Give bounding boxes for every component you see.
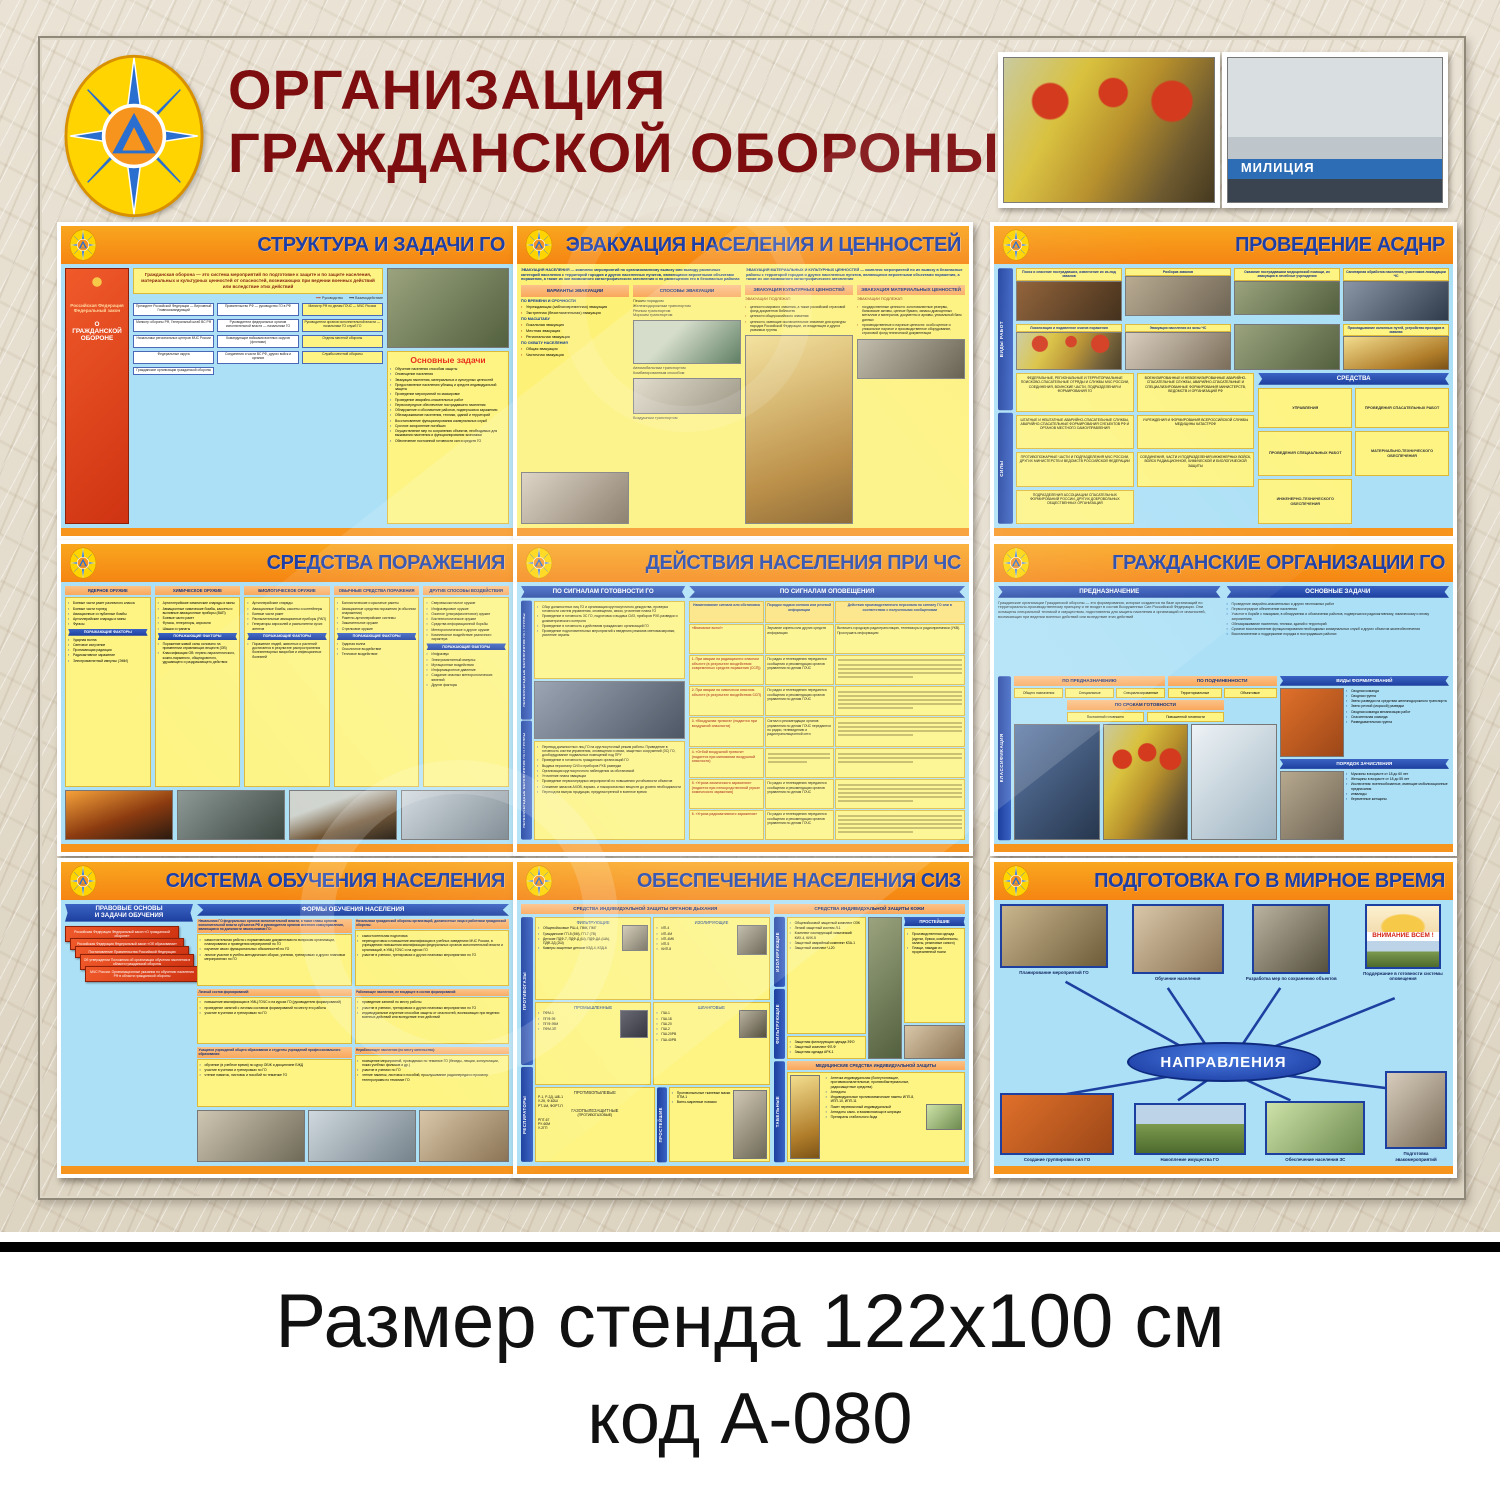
equipment-stock-photo xyxy=(1134,1103,1246,1155)
vrib-filtruyushchie: ФИЛЬТРУЮЩИЕ xyxy=(774,989,785,1059)
siz-model: ППФ-95 xyxy=(538,1017,618,1021)
vrib-tabelnye: ТАБЕЛЬНЫЕ xyxy=(774,1061,785,1162)
work-photo xyxy=(1016,332,1122,370)
vrib-protivogazy: ПРОТИВОГАЗЫ xyxy=(521,917,533,1065)
siz-model: Камеры защитные детские КЗД-4, КЗД-6 xyxy=(538,946,620,950)
evac-col4-title: ЭВАКУАЦИЯ МАТЕРИАЛЬНЫХ ЦЕННОСТЕЙ xyxy=(857,285,965,295)
skin-iso-item: Защитный аварийный комплект КЗА-1 xyxy=(790,941,863,945)
evac-ways3: Воздушным транспортом xyxy=(633,416,741,421)
coat-of-arms-icon xyxy=(90,275,104,289)
panel-actions: ДЕЙСТВИЯ НАСЕЛЕНИЯ ПРИ ЧС ПО СИГНАЛАМ ГО… xyxy=(513,540,973,856)
evac-variant: Региональная эвакуация xyxy=(521,335,629,340)
skin-iso-item: Комплект изолирующий химический КИХ-4, К… xyxy=(790,931,863,940)
siz-model: ПШ-2 xyxy=(656,1027,736,1031)
mchs-emblem-icon xyxy=(525,229,553,261)
weapon-factors-item: Создание опасных метеорологических явлен… xyxy=(426,673,506,682)
weapon-factors-item: Поражение живой силы основано на примене… xyxy=(158,642,238,651)
org-chart-box: Гражданские организации гражданской обор… xyxy=(133,367,214,376)
weapon-items-item: Фугасы xyxy=(68,622,148,626)
signal-name: 6. «Угроза радиоактивного заражения» xyxy=(689,810,763,840)
evac-col3-list: ценности мирового значения, а также росс… xyxy=(745,304,853,334)
skin-filter-list: Защитная фильтрующая одежда ЗФОЗащитный … xyxy=(787,1036,866,1059)
table-header: Действия производственного персонала по … xyxy=(835,601,965,623)
signal-name: 4. «Отбой воздушной тревоги» (подается п… xyxy=(689,748,763,778)
training-item: личное участие в учебно-методических сбо… xyxy=(200,953,350,962)
work-photo xyxy=(1234,281,1340,315)
evac-cultural-item: ценности мирового значения, а также росс… xyxy=(745,305,853,314)
skin-simple-item: Производственная одежда (куртки, брюки, … xyxy=(907,932,962,945)
org-chart-box: Соединения и части ВС РФ, других войск и… xyxy=(217,351,298,364)
sredstva-box: ПРОВЕДЕНИЯ СПЕЦИАЛЬНЫХ РАБОТ xyxy=(1258,431,1352,476)
training-group-list: обучение (в учебное время) по курсу ОБЖ … xyxy=(197,1059,352,1107)
training-group-title: Начальники гражданской обороны организац… xyxy=(355,919,510,930)
signal-order: По радио и телевидению передаются сообще… xyxy=(765,779,834,809)
weapon-items-item: Авиационные и глубинные бомбы xyxy=(68,612,148,616)
task-item: Восстановление функционирования коммунал… xyxy=(390,419,506,423)
panel8-header: ОБЕСПЕЧЕНИЕ НАСЕЛЕНИЯ СИЗ xyxy=(517,862,969,900)
weapon-items-item: Артиллерийские снаряды xyxy=(247,601,327,605)
gotovnost-item: Перевод должностных лиц ГО на круглосуто… xyxy=(537,745,682,758)
ribbon-prednaznachenie: ПРЕДНАЗНАЧЕНИЕ xyxy=(998,586,1221,598)
law-book-title: О ГРАЖДАНСКОЙ ОБОРОНЕ xyxy=(69,321,125,342)
weapon-factors-item: Тепловое воздействие xyxy=(337,652,417,656)
work-photo xyxy=(1343,336,1449,370)
evac-way: Комбинированным способом xyxy=(633,371,741,376)
worker-photo xyxy=(904,1025,965,1059)
training-group-title: Начальники ГО федеральных органов исполн… xyxy=(197,919,352,934)
signal-order: По радио и телевидению передаются сообще… xyxy=(765,686,834,716)
mchs-emblem-icon xyxy=(69,547,97,579)
formation-type: Разведывательная группа xyxy=(1346,720,1449,724)
skin-iso-item: Легкий защитный костюм Л-1 xyxy=(790,926,863,930)
signal-actions: Включить городскую радиотрансляцию, теле… xyxy=(835,624,965,654)
g2-title: ПО ПОДЧИНЕННОСТИ xyxy=(1168,676,1277,686)
work-caption: Локализация и подавление очагов поражени… xyxy=(1016,324,1122,332)
weapon-items-item: Биотехнологическое оружие xyxy=(426,617,506,621)
signal-name: «Внимание всем!» xyxy=(689,624,763,654)
work-photo xyxy=(1234,324,1340,371)
signal-actions-text xyxy=(837,753,962,763)
sign-text: ВНИМАНИЕ ВСЕМ ! xyxy=(1367,932,1439,941)
top-nodes: Планирование мероприятий ГО Обучение нас… xyxy=(998,904,1449,981)
mchs-emblem-icon xyxy=(525,547,553,579)
weapon-items-item: Стрелковое оружие xyxy=(337,627,417,631)
node-caption: Обучение населения xyxy=(1155,976,1201,981)
panel1-header: СТРУКТУРА И ЗАДАЧИ ГО xyxy=(61,226,513,264)
table-header: Наименование сигнала или обстановка xyxy=(689,601,763,623)
works-grid: Поиск и спасение пострадавших, извлечени… xyxy=(1016,268,1449,370)
task-item: Проведение аварийно-спасательных работ xyxy=(390,398,506,402)
training-item: самостоятельная работа с нормативными до… xyxy=(200,938,350,947)
bottom-nodes: Создание группировки сил ГО Накопление и… xyxy=(998,1071,1449,1162)
siz-model: Гражданские ГП-5 (5М), ГП-7 (7В) xyxy=(538,932,620,936)
ipp-packet-photo xyxy=(926,1104,962,1130)
node-caption: Разработка мер по сохранению объектов xyxy=(1246,976,1337,981)
weapon-column-title: ДРУГИЕ СПОСОБЫ ВОЗДЕЙСТВИЯ xyxy=(423,586,509,595)
panel-peacetime: ПОДГОТОВКА ГО В МИРНОЕ ВРЕМЯ Планировани… xyxy=(990,858,1457,1178)
suits-photo xyxy=(1103,724,1189,840)
weapon-factors: ИнфразвукЭлектромагнитный импульсМутацио… xyxy=(426,652,506,687)
org-chart-box: Министр РФ по делам ГОЧС — МЧС России xyxy=(302,303,383,316)
evac-way: Морским транспортом xyxy=(633,313,741,318)
training-item: участие в учениях и тренировках по ГО xyxy=(200,1068,350,1072)
docs-cascade: Российская Федерация Федеральный закон «… xyxy=(65,926,193,983)
siz-model: ПФМ-1 xyxy=(538,1011,618,1015)
hose-mask-photo xyxy=(739,1010,767,1038)
work-caption: Прокладывание колонных путей, устройство… xyxy=(1343,324,1449,337)
weapon-factors-item: Электромагнитный импульс xyxy=(426,658,506,662)
photo-police-van: МИЛИЦИЯ xyxy=(1222,52,1448,208)
table-header: Порядок подачи сигнала или речевой инфор… xyxy=(765,601,834,623)
enrollment-rule: Исключения: военнообязанные, имеющие моб… xyxy=(1346,782,1449,791)
task-item: Предоставление населению убежищ и средст… xyxy=(390,383,506,392)
separator-bar xyxy=(0,1242,1500,1252)
evac-g1: Упреждающая (заблаговременная) эвакуация… xyxy=(521,305,629,315)
training-item: индивидуальное изучение способов защиты … xyxy=(357,1011,507,1020)
org-task: Проведение аварийно-спасательных и други… xyxy=(1227,602,1450,606)
med-item: Индивидуальные противохимические пакеты … xyxy=(826,1095,922,1104)
sredstva-box: МАТЕРИАЛЬНО-ТЕХНИЧЕСКОГО ОБЕСПЕЧЕНИЯ xyxy=(1355,431,1449,476)
training-item: обучение (в учебное время) по курсу ОБЖ … xyxy=(200,1063,350,1067)
org-chart-box: Президент Российской Федерации — Верховн… xyxy=(133,303,214,316)
enrollment-rule: инвалиды xyxy=(1346,792,1449,796)
cloth-mask-photo xyxy=(733,1090,767,1159)
org-chart-box: Руководители органов исполнительной влас… xyxy=(302,319,383,332)
sredstva-box: ПРОВЕДЕНИЯ СПАСАТЕЛЬНЫХ РАБОТ xyxy=(1355,388,1449,428)
simple-list: Противопыльные тканевые маски ПТМ-1Ватно… xyxy=(672,1090,731,1159)
training-item: посещение мероприятий, проводимых по тем… xyxy=(357,1059,507,1068)
mchs-emblem-icon xyxy=(58,52,210,220)
enrollment-rule: беременные женщины xyxy=(1346,797,1449,801)
weapon-items-item: Фугасы, генераторы, аэрозоли xyxy=(158,621,238,625)
police-van-text: МИЛИЦИЯ xyxy=(1241,160,1315,175)
weapon-items-item: Сверхвысокоточное оружие xyxy=(426,601,506,605)
training-group-title: Неработающее население (по месту жительс… xyxy=(355,1047,510,1054)
equipment-photo xyxy=(857,339,965,379)
training-group-list: самостоятельная подготовкапереподготовка… xyxy=(355,930,510,986)
training-item: участие в учениях по ГО xyxy=(357,1068,507,1072)
panel9-title: ПОДГОТОВКА ГО В МИРНОЕ ВРЕМЯ xyxy=(1094,870,1445,893)
gotovnost-item: Сбор должностных лиц ГО и организация кр… xyxy=(537,605,682,614)
go-definition: Гражданская оборона — это система меропр… xyxy=(133,268,383,294)
org-chart-box: Руководители федеральных органов исполни… xyxy=(217,319,298,332)
g3-title: ПО СРОКАМ ГОТОВНОСТИ xyxy=(1067,700,1225,710)
org-task: Первоочередное обеспечение населения xyxy=(1227,607,1450,611)
vnimanie-vsem-sign: ВНИМАНИЕ ВСЕМ ! xyxy=(1365,904,1441,969)
evac-g3h: ПО ОХВАТУ НАСЕЛЕНИЯ xyxy=(521,341,629,346)
siz-model: Общевойсковые РШ-4, ПМК, ПМГ xyxy=(538,926,620,930)
org-chart-box: Службы местной обороны xyxy=(302,351,383,364)
evac-g2h: ПО МАСШТАБУ xyxy=(521,317,629,322)
work-photo xyxy=(1343,281,1449,321)
forces-box: Штатные и нештатные аварийно-спасательны… xyxy=(1016,415,1134,449)
weapon-items-item: Комплексное воздействие различного харак… xyxy=(426,633,506,642)
panel3-title: ПРОВЕДЕНИЕ АСДНР xyxy=(1235,234,1445,257)
forces-box: Подразделения ассоциации спасательных фо… xyxy=(1016,490,1134,524)
rescue-photo xyxy=(387,268,509,348)
task-item: Эвакуация населения, материальных и куль… xyxy=(390,378,506,382)
med-item: Препараты стабильного йода xyxy=(826,1115,922,1119)
weapon-factors-item: Ударная волна xyxy=(68,638,148,642)
weapon-items-item: Шашки и гранаты xyxy=(158,627,238,631)
vrib-respiratory: РЕСПИРАТОРЫ xyxy=(521,1067,533,1162)
weapon-column-title: БИОЛОГИЧЕСКОЕ ОРУЖИЕ xyxy=(244,586,330,595)
org-task: Участие в борьбе с пожарами, в обнаружен… xyxy=(1227,612,1450,621)
training-item: чтение памяток, листовок и пособий по те… xyxy=(200,1073,350,1077)
siz-model: ИП-4 xyxy=(656,926,734,930)
class-box: Постоянной готовности xyxy=(1067,712,1144,722)
class-box: Специальные xyxy=(1065,688,1114,698)
forces-box: Учреждения и формирования Всероссийской … xyxy=(1137,415,1255,449)
weapon-factors-item: Поражение людей, животных и растений дос… xyxy=(247,642,327,659)
gotovnost-item: Приведение в готовность ЗС ГО, подготовк… xyxy=(537,614,682,623)
weapon-items-item: Боевые части торпед xyxy=(68,607,148,611)
evac-cultural-item: ценности общероссийского значения xyxy=(745,314,853,318)
weapon-column-body: Сверхвысокоточное оружиеИнфразвуковое ор… xyxy=(423,597,509,787)
weapon-items-item: Авиационные средства поражения (в обычно… xyxy=(337,607,417,616)
work-photo xyxy=(1016,281,1122,321)
weapon-items-item: Баллистические и крылатые ракеты xyxy=(337,601,417,605)
siz-simple-item: Ватно-марлевые повязки xyxy=(672,1100,731,1104)
panel4-header: СРЕДСТВА ПОРАЖЕНИЯ xyxy=(61,544,513,582)
evac-material-item: государственные ценности: золотовалютные… xyxy=(857,305,965,322)
siz-skin-title: СРЕДСТВА ИНДИВИДУАЛЬНОЙ ЗАЩИТЫ КОЖИ xyxy=(774,904,965,914)
photo-rescuers xyxy=(998,52,1220,208)
training-item: участие в учениях, тренировках и других … xyxy=(357,953,507,957)
class-box: Объектовые xyxy=(1224,688,1277,698)
g1-title: ПО ПРЕДНАЗНАЧЕНИЮ xyxy=(1014,676,1165,686)
skin-iso-item: Общевойсковой защитный комплект ОЗК xyxy=(790,921,863,925)
police-van-photo-image: МИЛИЦИЯ xyxy=(1227,57,1443,203)
weapon-column-body: Артиллерийские снарядыАвиационные бомбы,… xyxy=(244,597,330,787)
stand-title: ОРГАНИЗАЦИЯ ГРАЖДАНСКОЙ ОБОРОНЫ xyxy=(228,62,1000,181)
org-chart-box: Начальники региональных центров МЧС Росс… xyxy=(133,335,214,348)
sredstva-box: УПРАВЛЕНИЯ xyxy=(1258,388,1352,428)
stand-title-line1: ОРГАНИЗАЦИЯ xyxy=(228,62,1000,118)
gotovnost-list-2: Перевод должностных лиц ГО на круглосуто… xyxy=(534,741,685,840)
siz-model: КИП-8 xyxy=(656,947,734,951)
weapon-items-item: Метеорологическое и другое оружие xyxy=(426,628,506,632)
med-item: Пакет перевязочный индивидуальный xyxy=(826,1105,922,1109)
panel7-title: СИСТЕМА ОБУЧЕНИЯ НАСЕЛЕНИЯ xyxy=(166,870,505,893)
sredstva-ribbon: СРЕДСТВА xyxy=(1258,373,1449,385)
weapon-column-title: ЯДЕРНОЕ ОРУЖИЕ xyxy=(65,586,151,595)
weapon-factors-item: Инфразвук xyxy=(426,652,506,656)
evac-variant: Местная эвакуация xyxy=(521,329,629,334)
airplane-photo xyxy=(308,1110,416,1162)
workers-photo xyxy=(1014,724,1100,840)
med-list: Аптечка индивидуальная (болеутоляющие, п… xyxy=(824,1073,924,1161)
org-chart-box: Федеральные округа xyxy=(133,351,214,364)
org-chart-legend: ⟶ Руководство ⟶ Взаимодействие xyxy=(133,296,383,300)
training-group-list: проведение занятий по месту работыучасти… xyxy=(355,997,510,1045)
weapon-column-body: Боевые части ракет различного классаБоев… xyxy=(65,597,151,787)
gotovnost-item: Приведение в готовность к действиям граж… xyxy=(537,624,682,628)
vrib-prosteyshie: ПРОСТЕЙШИЕ xyxy=(657,1087,667,1162)
org-chart-box: Командующие войсками военных округов (фл… xyxy=(217,335,298,348)
tasks-list: Обучение населения способам защитыОповещ… xyxy=(390,367,506,443)
siz-model: ПШ-1 xyxy=(656,1011,736,1015)
weapon-items: Баллистические и крылатые ракетыАвиацион… xyxy=(337,601,417,631)
bus-photo xyxy=(633,378,741,414)
evacuation-prep-photo xyxy=(1385,1071,1447,1149)
submarine-photo xyxy=(177,790,285,840)
factors-ribbon: ПОРАЖАЮЩИЕ ФАКТОРЫ xyxy=(337,633,417,640)
mchs-emblem-icon xyxy=(1002,229,1030,261)
weapon-items-item: Ракетно-артиллерийские системы xyxy=(337,616,417,620)
task-item: Срочное захоронение погибших xyxy=(390,424,506,428)
panel1-title: СТРУКТУРА И ЗАДАЧИ ГО xyxy=(257,234,505,257)
skin-filter-item: Защитный комплект ФЛ-Ф xyxy=(790,1045,863,1049)
gotovnost-item: Выдача персоналу СИЗ и приборов РХБ разв… xyxy=(537,764,682,768)
mchs-emblem-icon xyxy=(69,865,97,897)
missile-photo xyxy=(289,790,397,840)
weapon-factors: Поражение живой силы основано на примене… xyxy=(158,642,238,664)
weapon-factors-item: Ударная волна xyxy=(337,642,417,646)
panel-weapons: СРЕДСТВА ПОРАЖЕНИЯ ЯДЕРНОЕ ОРУЖИЕБоевые … xyxy=(57,540,517,856)
task-item: Обучение населения способам защиты xyxy=(390,367,506,371)
node-caption: Обеспечение населения ЗС xyxy=(1285,1157,1345,1162)
mchs-emblem-icon xyxy=(69,229,97,261)
training-item: чтение памяток, листовок и пособий, прос… xyxy=(357,1073,507,1082)
factors-ribbon: ПОРАЖАЮЩИЕ ФАКТОРЫ xyxy=(247,633,327,640)
evac-variant: Упреждающая (заблаговременная) эвакуация xyxy=(521,305,629,310)
weapon-items-item: Генераторы аэрозолей и распылители сухих… xyxy=(247,622,327,631)
panel-evacuation: ЭВАКУАЦИЯ НАСЕЛЕНИЯ И ЦЕННОСТЕЙ ЭВАКУАЦИ… xyxy=(513,222,973,540)
panel6-title: ГРАЖДАНСКИЕ ОРГАНИЗАЦИИ ГО xyxy=(1112,552,1445,575)
org-chart: Президент Российской Федерации — Верховн… xyxy=(133,303,383,524)
objects-photo xyxy=(1252,904,1330,974)
weapon-items-item: Озонное (ультрафиолетовое) оружие xyxy=(426,612,506,616)
first-aid-kit-photo xyxy=(790,1075,820,1159)
formation-type: Сводная команда xyxy=(1346,689,1449,693)
mchs-emblem-icon xyxy=(1002,547,1030,579)
panel-structure-tasks: СТРУКТУРА И ЗАДАЧИ ГО Российская Федерац… xyxy=(57,222,517,540)
training-item: изучение своих функциональных обязанност… xyxy=(200,947,350,951)
weapon-items-item: Инфразвуковое оружие xyxy=(426,607,506,611)
evac-material-item: производственные и научные ценности: осо… xyxy=(857,323,965,336)
signal-name: 5. «Угроза химического заражения» (подае… xyxy=(689,779,763,809)
weapon-factors-item: Другие факторы xyxy=(426,683,506,687)
industrial-mask-photo xyxy=(620,1010,648,1038)
skin-iso-item: Защитный комплект Ч-20 xyxy=(790,946,863,950)
training-group-list: посещение мероприятий, проводимых по тем… xyxy=(355,1055,510,1107)
signal-order: По радио и телевидению передаются сообще… xyxy=(765,655,834,685)
weapon-factors-item: Информационное давление xyxy=(426,668,506,672)
panel-asdnr: ПРОВЕДЕНИЕ АСДНР ВИДЫ РАБОТ СИЛЫ Поиск и… xyxy=(990,222,1457,540)
iso-apparatus-photo xyxy=(737,925,767,955)
pz-ribbon: ПОРЯДОК ЗАЧИСЛЕНИЯ xyxy=(1280,759,1449,769)
resp-dust-list: Р-1, Р-2Д, ШБ-1У-2К, Ф-62ШРТ-1М, ФОРТ-П xyxy=(538,1095,652,1108)
med-item: Аптечка индивидуальная (болеутоляющие, п… xyxy=(826,1076,922,1089)
siz-model: У-2ГП xyxy=(538,1126,652,1130)
rescuers-photo-image xyxy=(1003,57,1215,203)
training-groups: Начальники ГО федеральных органов исполн… xyxy=(197,919,509,1107)
panel9-header: ПОДГОТОВКА ГО В МИРНОЕ ВРЕМЯ xyxy=(994,862,1453,900)
skin-simple-title: ПРОСТЕЙШИЕ xyxy=(904,917,965,926)
evac-col2-title: СПОСОБЫ ЭВАКУАЦИИ xyxy=(633,285,741,297)
panel8-title: ОБЕСПЕЧЕНИЕ НАСЕЛЕНИЯ СИЗ xyxy=(637,870,961,893)
weapon-factors-item: Мутационные воздействия xyxy=(426,663,506,667)
gotovnost-item: Проведение первоочередных мероприятий по… xyxy=(537,779,682,783)
weapon-factors-item: Световое излучение xyxy=(68,643,148,647)
panel2-title: ЭВАКУАЦИЯ НАСЕЛЕНИЯ И ЦЕННОСТЕЙ xyxy=(566,234,961,257)
ribbon-osnovnye-zadachi: ОСНОВНЫЕ ЗАДАЧИ xyxy=(1227,586,1450,598)
weapon-items-item: Артиллерийские химические снаряды и мины xyxy=(158,601,238,605)
factors-ribbon: ПОРАЖАЮЩИЕ ФАКТОРЫ xyxy=(426,643,506,650)
evac-def1: ЭВАКУАЦИЯ НАСЕЛЕНИЯ — комплекс мероприят… xyxy=(521,268,740,282)
vrib-vidy-rabot: ВИДЫ РАБОТ xyxy=(998,268,1013,410)
stand-product-image: ОРГАНИЗАЦИЯ ГРАЖДАНСКОЙ ОБОРОНЫ МИЛИЦИЯ … xyxy=(0,0,1500,1500)
org-task: Обеззараживание населения, техники, здан… xyxy=(1227,622,1450,626)
gotovnost-item: Проведение подготовительных мероприятий … xyxy=(537,629,682,638)
evac-variant: Общая эвакуация xyxy=(521,347,629,352)
skin-iso-list: Общевойсковой защитный комплект ОЗКЛегки… xyxy=(787,917,866,1034)
siz-model: ИП-4МК xyxy=(656,937,734,941)
weapon-items-item: Зажигательное оружие xyxy=(337,621,417,625)
work-photo xyxy=(1125,332,1231,370)
formation-type: Сводная группа xyxy=(1346,694,1449,698)
org-chart-box: Министр обороны РФ, Генеральный штаб ВС … xyxy=(133,319,214,332)
training-item: участие в учениях и тренировках по ГО xyxy=(200,1011,350,1015)
node-caption: Создание группировки сил ГО xyxy=(1024,1157,1090,1162)
weapon-factors-item: Осколочное воздействие xyxy=(337,647,417,651)
sredstva-box: ИНЖЕНЕРНО-ТЕХНИЧЕСКОГО ОБЕСПЕЧЕНИЯ xyxy=(1258,479,1352,524)
gasmask-photo xyxy=(622,925,648,951)
evac-g3: Общая эвакуацияЧастичная эвакуация xyxy=(521,347,629,357)
evacuees-photo xyxy=(521,472,629,524)
training-item: участие в учениях, тренировках и других … xyxy=(357,1006,507,1010)
node-caption: Подготовка эвакомероприятий xyxy=(1383,1151,1449,1162)
evac-way: Воздушным транспортом xyxy=(633,416,741,421)
weapon-factors: Ударная волнаСветовое излучениеПроникающ… xyxy=(68,638,148,663)
siz-breath-title: СРЕДСТВА ИНДИВИДУАЛЬНОЙ ЗАЩИТЫ ОРГАНОВ Д… xyxy=(521,904,770,914)
tasks-title: Основные задачи xyxy=(390,355,506,365)
task-item: Оповещение населения xyxy=(390,372,506,376)
weapon-items-item: Авиационные химические бомбы, кассеты и … xyxy=(158,607,238,616)
orgs-tasks: Проведение аварийно-спасательных и други… xyxy=(1227,601,1450,673)
stand-code-caption: код А-080 xyxy=(0,1378,1500,1460)
classroom-photo xyxy=(419,1110,509,1162)
weapon-factors-item: Проникающая радиация xyxy=(68,648,148,652)
law-book-top: Российская Федерация Федеральный закон xyxy=(69,303,125,313)
weapon-factors: Ударная волнаОсколочное воздействиеТепло… xyxy=(337,642,417,657)
training-group-title: Работающее население, не входящее в сост… xyxy=(355,989,510,996)
loudspeakers-photo xyxy=(1367,941,1439,967)
vrib-pervoocherednye-1: ПЕРВООЧЕРЕДНЫЕ МЕРОПРИЯТИЯ ГО I ГРУППЫ xyxy=(521,601,532,720)
ribbon-gotovnost: ПО СИГНАЛАМ ГОТОВНОСТИ ГО xyxy=(521,586,685,598)
panel3-header: ПРОВЕДЕНИЕ АСДНР xyxy=(994,226,1453,264)
mchs-emblem-icon xyxy=(525,865,553,897)
legend-ruk: Руководство xyxy=(322,296,343,300)
training-item: переподготовка и повышение квалификации … xyxy=(357,939,507,952)
skin-simple-list: Производственная одежда (куртки, брюки, … xyxy=(904,928,965,1022)
work-photo xyxy=(1125,276,1231,316)
factors-ribbon: ПОРАЖАЮЩИЕ ФАКТОРЫ xyxy=(68,629,148,636)
class-box: Территориальные xyxy=(1168,688,1221,698)
siz-model: ППФ-95М xyxy=(538,1022,618,1026)
weapon-items: Сверхвысокоточное оружиеИнфразвуковое ор… xyxy=(426,601,506,641)
forces-box: Военизированные и невоенизированные авар… xyxy=(1137,373,1255,412)
ribbon-opoveshenie: ПО СИГНАЛАМ ОПОВЕЩЕНИЯ xyxy=(689,586,965,598)
enrollment-rule: Женщины в возрасте от 18 до 55 лет xyxy=(1346,777,1449,781)
panel-training: СИСТЕМА ОБУЧЕНИЯ НАСЕЛЕНИЯ ПРАВОВЫЕ ОСНО… xyxy=(57,858,517,1178)
weapon-factors: Поражение людей, животных и растений дос… xyxy=(247,642,327,659)
explosion-photo xyxy=(65,790,173,840)
panel2-header: ЭВАКУАЦИЯ НАСЕЛЕНИЯ И ЦЕННОСТЕЙ xyxy=(517,226,969,264)
gas-hose-list: ПШ-1ПШ-1БПШ-20ПШ-2ПШ-20РВПШ-40РВ xyxy=(656,1010,736,1043)
aircraft-photo xyxy=(401,790,509,840)
